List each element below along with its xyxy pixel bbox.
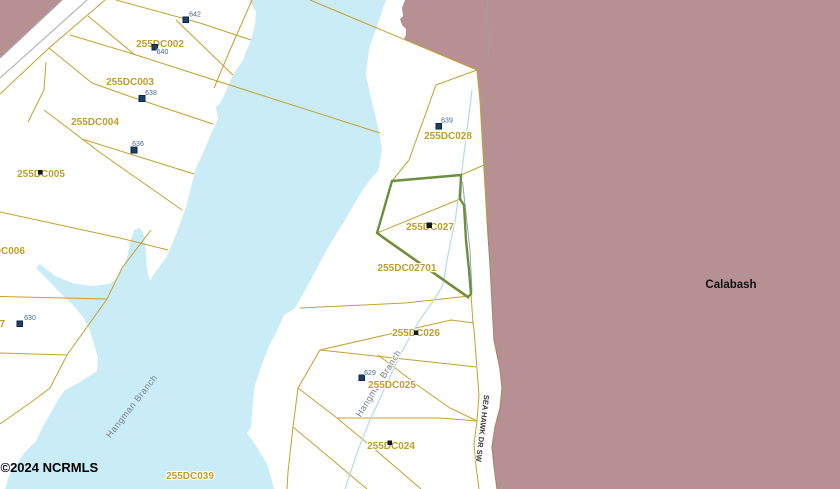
svg-text:255DC004: 255DC004: [71, 117, 119, 128]
svg-text:255DC006: 255DC006: [0, 246, 25, 257]
svg-text:630: 630: [24, 315, 36, 322]
svg-text:255DC003: 255DC003: [106, 77, 154, 88]
svg-text:255DC02701: 255DC02701: [378, 263, 437, 274]
svg-text:Calabash: Calabash: [705, 279, 756, 291]
svg-text:638: 638: [145, 90, 157, 97]
svg-text:255DC007: 255DC007: [0, 319, 5, 330]
svg-text:642: 642: [189, 12, 201, 19]
svg-text:©2024 NCRMLS: ©2024 NCRMLS: [1, 460, 99, 475]
svg-text:640: 640: [157, 49, 169, 56]
svg-text:255DC025: 255DC025: [368, 380, 416, 391]
svg-text:255DC028: 255DC028: [424, 131, 472, 142]
svg-text:639: 639: [441, 118, 453, 125]
svg-text:636: 636: [132, 141, 144, 148]
svg-text:629: 629: [364, 370, 376, 377]
svg-text:255DC039: 255DC039: [166, 471, 214, 482]
